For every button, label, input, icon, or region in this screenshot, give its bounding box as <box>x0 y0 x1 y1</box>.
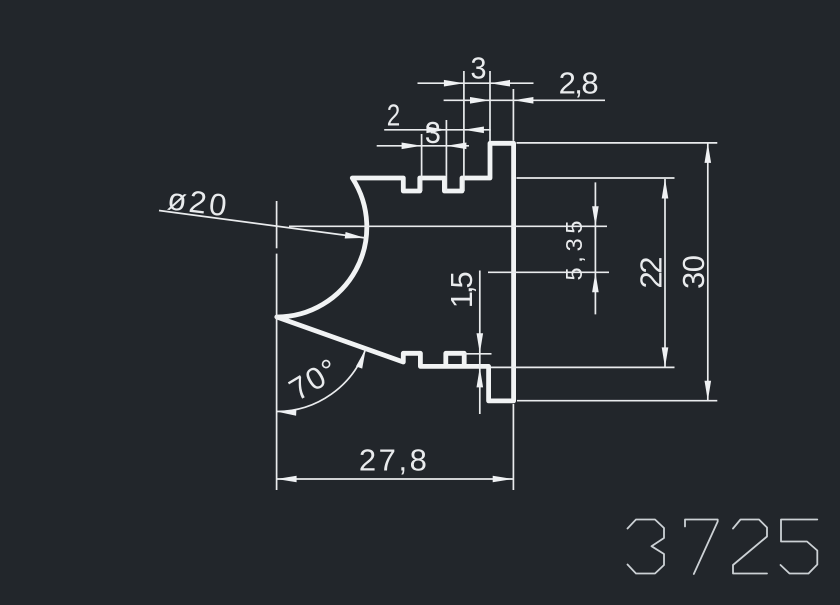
svg-text:5,35: 5,35 <box>561 221 587 281</box>
svg-text:ø20: ø20 <box>166 181 229 223</box>
svg-text:22: 22 <box>634 257 669 289</box>
svg-text:27,8: 27,8 <box>359 442 427 477</box>
svg-text:3: 3 <box>425 115 441 150</box>
svg-text:2,8: 2,8 <box>559 65 599 100</box>
svg-text:3: 3 <box>471 50 487 85</box>
svg-text:30: 30 <box>676 255 711 289</box>
svg-text:2: 2 <box>387 98 401 133</box>
svg-text:1,5: 1,5 <box>444 271 479 308</box>
